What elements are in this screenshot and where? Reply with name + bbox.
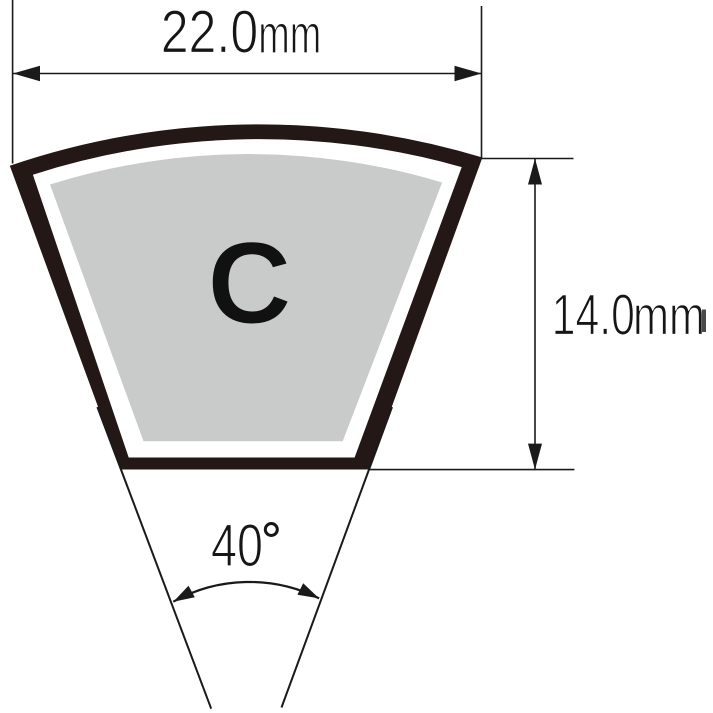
svg-text:mm: mm — [258, 3, 321, 65]
svg-text:40: 40 — [211, 511, 263, 579]
svg-text:mm: mm — [633, 285, 705, 347]
svg-text:22.0: 22.0 — [161, 0, 259, 66]
svg-text:14.0: 14.0 — [552, 282, 635, 347]
svg-text:C: C — [207, 218, 291, 348]
